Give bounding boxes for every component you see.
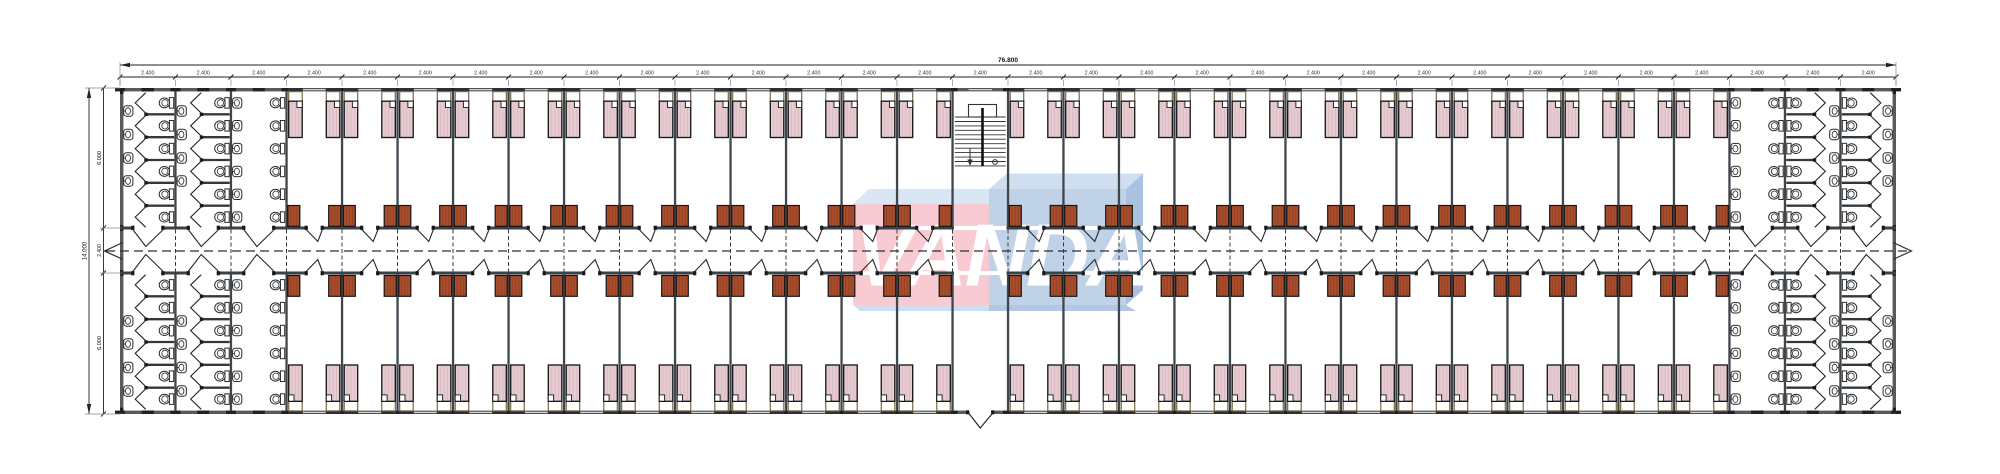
- svg-text:2.400: 2.400: [696, 71, 709, 77]
- svg-text:2.400: 2.400: [252, 71, 265, 77]
- svg-text:2.400: 2.400: [530, 71, 543, 77]
- svg-text:2.400: 2.400: [585, 71, 598, 77]
- svg-text:2.400: 2.400: [1695, 71, 1708, 77]
- svg-text:2.400: 2.400: [1640, 71, 1653, 77]
- svg-text:2.400: 2.400: [141, 71, 154, 77]
- svg-text:2.400: 2.400: [641, 71, 654, 77]
- svg-text:2.400: 2.400: [1529, 71, 1542, 77]
- svg-text:2.400: 2.400: [807, 71, 820, 77]
- svg-text:2.400: 2.400: [1362, 71, 1375, 77]
- svg-text:2.400: 2.400: [1862, 71, 1875, 77]
- svg-text:2.400: 2.400: [1584, 71, 1597, 77]
- svg-text:2.400: 2.400: [1307, 71, 1320, 77]
- svg-text:2.400: 2.400: [97, 244, 103, 257]
- svg-text:2.400: 2.400: [1473, 71, 1486, 77]
- svg-text:2.400: 2.400: [363, 71, 376, 77]
- svg-text:14.000: 14.000: [83, 241, 89, 260]
- svg-text:2.400: 2.400: [1029, 71, 1042, 77]
- svg-text:2.400: 2.400: [1251, 71, 1264, 77]
- svg-text:2.400: 2.400: [308, 71, 321, 77]
- svg-text:2.400: 2.400: [1418, 71, 1431, 77]
- svg-text:2.400: 2.400: [1085, 71, 1098, 77]
- svg-text:2.400: 2.400: [197, 71, 210, 77]
- svg-text:2.400: 2.400: [1751, 71, 1764, 77]
- svg-text:2.400: 2.400: [474, 71, 487, 77]
- svg-text:2.400: 2.400: [419, 71, 432, 77]
- svg-text:2.400: 2.400: [863, 71, 876, 77]
- svg-text:2.400: 2.400: [752, 71, 765, 77]
- svg-text:6.000: 6.000: [97, 151, 103, 165]
- svg-text:2.400: 2.400: [1140, 71, 1153, 77]
- svg-text:2.400: 2.400: [974, 71, 987, 77]
- svg-text:76.800: 76.800: [998, 57, 1018, 64]
- svg-text:2.400: 2.400: [918, 71, 931, 77]
- svg-text:6.000: 6.000: [97, 336, 103, 350]
- svg-text:2.400: 2.400: [1806, 71, 1819, 77]
- svg-text:2.400: 2.400: [1196, 71, 1209, 77]
